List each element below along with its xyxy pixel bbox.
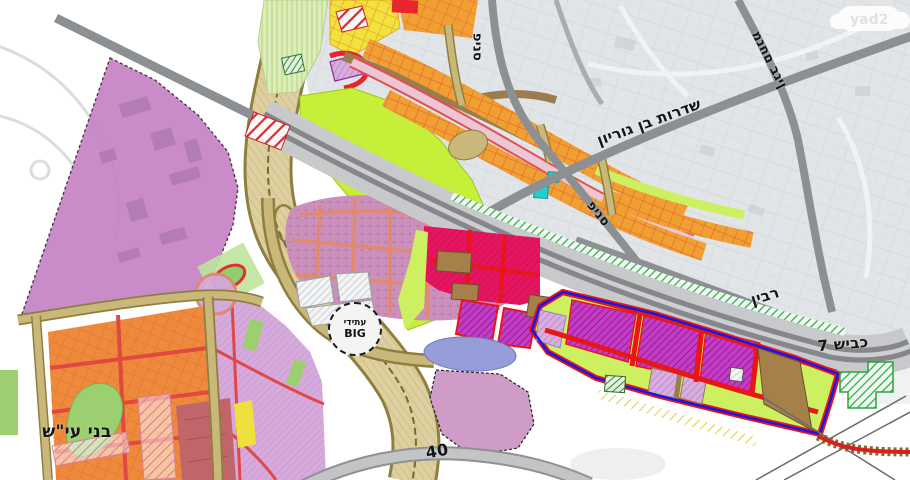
brown-parcel [451,283,478,301]
maroon-block [176,398,236,480]
label-road40: 40 [424,440,450,463]
crimson-zone [398,226,551,348]
yad2-watermark: yad2 [838,6,900,31]
zoning-map: פינס פינס שדרות בן גוריון מנחם בגין רבין… [0,0,910,480]
future-big-marker: עתידי BIG [328,302,382,356]
park-strip-west [0,370,18,435]
label-pines-north: פינס [470,33,485,61]
brown-parcel [436,251,471,273]
green-parcel [604,375,625,392]
yad2-watermark-text: yad2 [850,12,888,28]
label-bnei-ayish: בני עי"ש [42,422,111,442]
future-big-line2: BIG [344,328,366,341]
hatched-parcel [138,394,176,480]
